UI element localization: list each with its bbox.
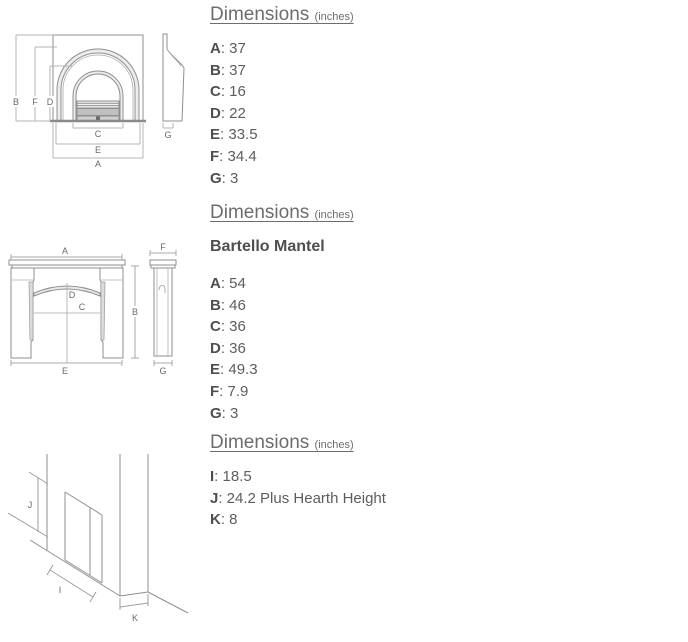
- dimension-row: I: 18.5: [210, 466, 670, 488]
- heading-unit: (inches): [315, 11, 354, 23]
- dimension-letter: F: [210, 383, 219, 400]
- dimension-value: : 37: [221, 62, 246, 79]
- dimension-row: D: 22: [210, 103, 670, 125]
- product-dimensions-page: B F D C E A G: [0, 0, 688, 642]
- heading-unit: (inches): [315, 439, 354, 451]
- dim-label-a: A: [95, 159, 101, 169]
- dimensions-heading: Dimensions (inches): [210, 432, 670, 454]
- heading-title: Dimensions: [210, 432, 309, 453]
- dim-label-j: J: [28, 500, 33, 510]
- heading-title: Dimensions: [210, 4, 309, 25]
- dim-label-i: I: [59, 585, 62, 595]
- dimension-letter: A: [210, 40, 221, 57]
- dimensions-heading: Dimensions (inches): [210, 4, 670, 26]
- dimension-row: G: 3: [210, 168, 670, 190]
- dimension-letter: D: [210, 105, 221, 122]
- dimension-letter: G: [210, 170, 222, 187]
- dim-label-k: K: [132, 613, 138, 623]
- dimension-row: B: 46: [210, 295, 670, 317]
- dim-label-a: A: [62, 246, 68, 256]
- dimension-letter: D: [210, 340, 221, 357]
- dimension-row: J: 24.2 Plus Hearth Height: [210, 488, 670, 510]
- dimension-value: : 34.4: [219, 148, 257, 165]
- dimension-letter: B: [210, 297, 221, 314]
- dimension-letter: C: [210, 83, 221, 100]
- dimension-letter: E: [210, 361, 220, 378]
- heading-title: Dimensions: [210, 202, 309, 223]
- dimension-row: F: 7.9: [210, 381, 670, 403]
- dimension-letter: K: [210, 511, 221, 528]
- dimension-row: A: 54: [210, 273, 670, 295]
- dimensions-section-hearth: Dimensions (inches) I: 18.5J: 24.2 Plus …: [210, 432, 670, 531]
- dimension-value: : 3: [222, 405, 239, 422]
- dimension-value: : 46: [221, 297, 246, 314]
- dim-label-g: G: [159, 366, 166, 376]
- dimension-row: B: 37: [210, 60, 670, 82]
- dimension-value: : 37: [221, 40, 246, 57]
- dimensions-heading: Dimensions (inches): [210, 202, 670, 224]
- technical-drawing-hearth-isometric: J I K: [8, 440, 208, 635]
- dimension-row: A: 37: [210, 38, 670, 60]
- dimension-list-insert: A: 37B: 37C: 16D: 22E: 33.5F: 34.4G: 3: [210, 38, 670, 189]
- dimension-letter: B: [210, 62, 221, 79]
- dimension-value: : 36: [221, 340, 246, 357]
- dimension-letter: F: [210, 148, 219, 165]
- dimension-list-mantel: A: 54B: 46C: 36D: 36E: 49.3F: 7.9G: 3: [210, 273, 670, 424]
- dim-label-f: F: [160, 242, 166, 252]
- dim-label-b: B: [132, 307, 138, 317]
- dim-label-e: E: [62, 366, 68, 376]
- dim-label-d: D: [47, 97, 54, 107]
- technical-drawing-insert-elevation: B F D C E A G: [4, 16, 204, 171]
- heading-unit: (inches): [315, 209, 354, 221]
- dimension-row: D: 36: [210, 338, 670, 360]
- dimension-list-hearth: I: 18.5J: 24.2 Plus Hearth HeightK: 8: [210, 466, 670, 531]
- dim-label-f: F: [32, 97, 38, 107]
- dimension-row: K: 8: [210, 509, 670, 531]
- dimension-row: G: 3: [210, 403, 670, 425]
- technical-drawing-mantel-elevation: A D C E B F G: [4, 242, 204, 382]
- dimension-row: F: 34.4: [210, 146, 670, 168]
- dim-label-c: C: [95, 129, 102, 139]
- dimension-letter: A: [210, 275, 221, 292]
- dimension-value: : 24.2 Plus Hearth Height: [218, 490, 386, 507]
- dimension-value: : 3: [222, 170, 239, 187]
- dimension-value: : 16: [221, 83, 246, 100]
- dimension-value: : 36: [221, 318, 246, 335]
- dimensions-section-mantel: Dimensions (inches) Bartello Mantel A: 5…: [210, 202, 670, 424]
- dim-label-b: B: [13, 97, 19, 107]
- dimension-row: C: 36: [210, 316, 670, 338]
- dim-label-g: G: [164, 130, 171, 140]
- dimension-letter: E: [210, 126, 220, 143]
- dimension-value: : 22: [221, 105, 246, 122]
- dimension-value: : 33.5: [220, 126, 258, 143]
- dimension-value: : 18.5: [214, 468, 252, 485]
- dimension-row: E: 49.3: [210, 359, 670, 381]
- dimension-value: : 7.9: [219, 383, 248, 400]
- dim-label-d: D: [69, 290, 76, 300]
- dimension-value: : 49.3: [220, 361, 258, 378]
- dimension-value: : 54: [221, 275, 246, 292]
- dimension-row: C: 16: [210, 81, 670, 103]
- mantel-name: Bartello Mantel: [210, 238, 670, 256]
- dimension-value: : 8: [221, 511, 238, 528]
- dim-label-c: C: [79, 302, 86, 312]
- dimension-letter: G: [210, 405, 222, 422]
- dim-label-e: E: [95, 145, 101, 155]
- dimension-letter: C: [210, 318, 221, 335]
- dimensions-section-insert: Dimensions (inches) A: 37B: 37C: 16D: 22…: [210, 4, 670, 189]
- dimension-row: E: 33.5: [210, 124, 670, 146]
